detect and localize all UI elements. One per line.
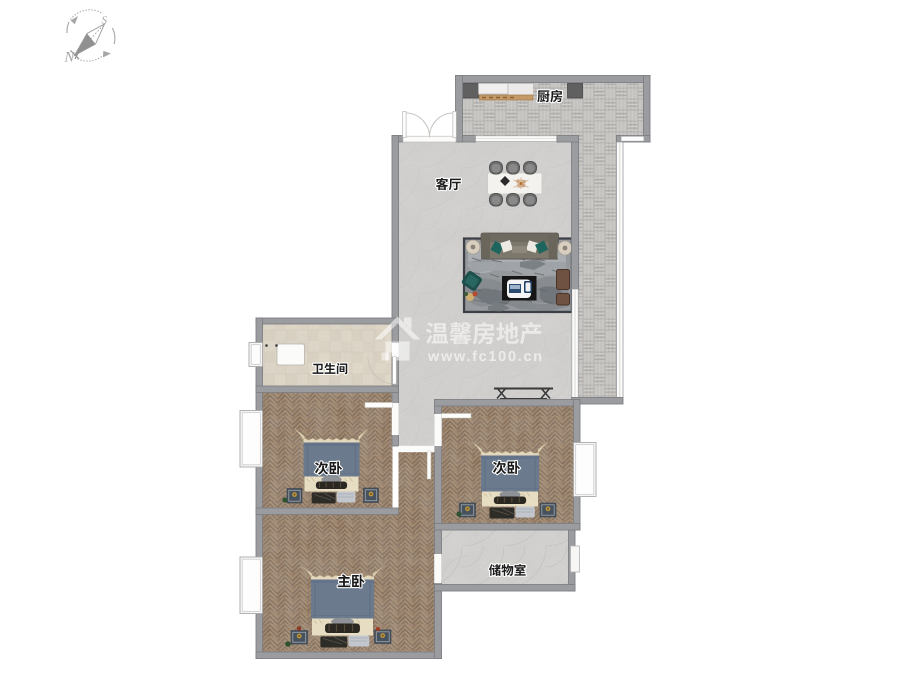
svg-text:www.fc100.cn: www.fc100.cn xyxy=(427,349,544,365)
